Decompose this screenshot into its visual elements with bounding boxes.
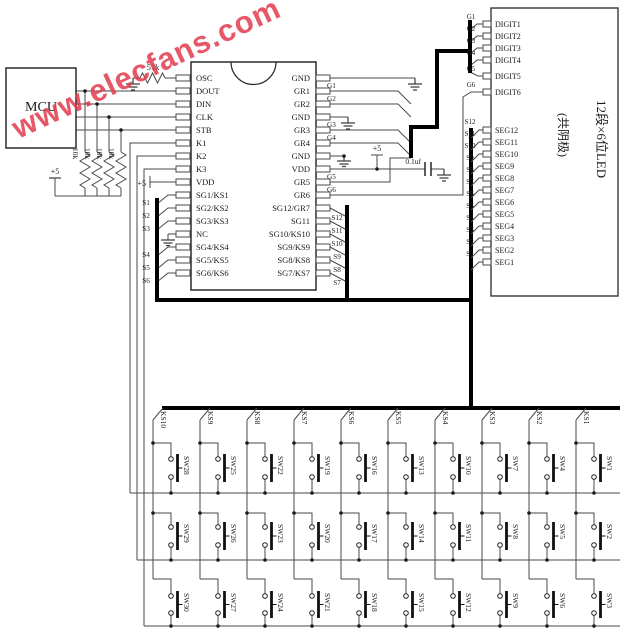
ks-column-label: KS10 <box>159 411 168 428</box>
junction-dot <box>216 624 220 628</box>
junction-dot <box>169 624 173 628</box>
ks-column-label: KS5 <box>394 411 403 425</box>
net-label: G2 <box>327 95 336 103</box>
net-label: S4 <box>466 214 474 222</box>
switch-terminal <box>310 475 315 480</box>
junction-dot <box>592 558 596 562</box>
chip-pin-right <box>316 231 330 237</box>
switch-terminal <box>310 525 315 530</box>
matrix-column <box>247 408 277 626</box>
switch-terminal <box>404 543 409 548</box>
switch-wire <box>294 443 312 493</box>
switch-terminal <box>451 594 456 599</box>
chip-pin-left <box>176 166 190 172</box>
display-subtitle: (共阴极) <box>556 113 570 157</box>
display-digit-pin <box>483 21 491 27</box>
display-pin-label: SEG11 <box>495 138 518 147</box>
switch-terminal <box>451 475 456 480</box>
junction-dot <box>216 558 220 562</box>
switch-wire <box>435 443 453 493</box>
net-label: G3 <box>467 37 476 45</box>
junction-dot <box>480 511 484 515</box>
digit-bus <box>409 20 470 158</box>
switch-label: SW5 <box>558 524 567 539</box>
switch-terminal <box>357 611 362 616</box>
net-label: S1 <box>466 250 474 258</box>
junction-dot <box>545 491 549 495</box>
switch-wire <box>294 579 312 626</box>
chip-pin-label: NC <box>196 229 208 239</box>
vcc-label: +5 <box>373 144 382 153</box>
switch-label: SW1 <box>605 456 614 471</box>
switch-terminal <box>216 525 221 530</box>
switch-terminal <box>357 594 362 599</box>
display-pin-label: DIGIT3 <box>495 44 521 53</box>
chip-pin-label: GND <box>292 73 310 83</box>
ks-column-label: KS3 <box>488 411 497 425</box>
junction-dot <box>342 154 346 158</box>
display-pin-label: DIGIT4 <box>495 56 521 65</box>
switch-terminal <box>592 457 597 462</box>
switch-terminal <box>169 594 174 599</box>
ground-icon <box>126 78 140 90</box>
chip-pin-right <box>316 114 330 120</box>
switch-terminal <box>357 475 362 480</box>
chip-pin-label: SG7/KS7 <box>277 268 310 278</box>
chip-pin-left <box>176 140 190 146</box>
switch-label: SW6 <box>558 593 567 608</box>
chip-pin-left <box>176 75 190 81</box>
net-label: S11 <box>332 227 343 235</box>
switch-terminal <box>498 543 503 548</box>
display-seg-pin <box>483 187 491 193</box>
switch-wire <box>435 579 453 626</box>
switch-wire <box>576 443 594 493</box>
switch-terminal <box>498 475 503 480</box>
net-label: G1 <box>467 13 476 21</box>
net-label: S10 <box>465 142 476 150</box>
vcc-label: +5 <box>137 179 146 188</box>
net-label: S5 <box>142 264 150 272</box>
display-pin-label: SEG8 <box>495 174 514 183</box>
net-label: S4 <box>142 251 150 259</box>
ks-column-label: KS8 <box>253 411 262 425</box>
junction-dot <box>592 624 596 628</box>
display-seg-pin <box>483 175 491 181</box>
switch-terminal <box>498 525 503 530</box>
display-seg-pin <box>483 259 491 265</box>
switch-terminal <box>592 475 597 480</box>
junction-dot <box>527 441 531 445</box>
switch-terminal <box>169 611 174 616</box>
switch-terminal <box>404 594 409 599</box>
switch-terminal <box>592 543 597 548</box>
switch-label: SW30 <box>182 593 191 612</box>
switch-wire <box>341 513 359 560</box>
ks-column-label: KS7 <box>300 411 309 425</box>
switch-terminal <box>263 525 268 530</box>
net-label: S7 <box>466 178 474 186</box>
display-pin-label: SEG5 <box>495 210 514 219</box>
display-pin-label: DIGIT5 <box>495 72 521 81</box>
nc-wire <box>168 234 176 240</box>
chip-pin-label: SG8/KS8 <box>277 255 310 265</box>
ks-column-label: KS2 <box>535 411 544 425</box>
junction-dot <box>574 441 578 445</box>
junction-dot <box>404 558 408 562</box>
chip-pin-left <box>176 218 190 224</box>
switch-label: SW17 <box>370 524 379 543</box>
net-label: S3 <box>466 226 474 234</box>
mcu-to-chip-wires <box>76 91 176 130</box>
chip-pin-label: OSC <box>196 73 213 83</box>
vdd-left-wire <box>150 176 176 188</box>
chip-pin-left <box>176 205 190 211</box>
display-seg-pin <box>483 127 491 133</box>
ks-column-label: KS9 <box>206 411 215 425</box>
switch-terminal <box>545 611 550 616</box>
switch-wire <box>388 513 406 560</box>
bypass-cap-value: 0.1uf <box>405 157 421 166</box>
switch-label: SW2 <box>605 524 614 539</box>
chip-pin-label: GR2 <box>294 99 310 109</box>
chip-pin-right <box>316 153 330 159</box>
switch-label: SW4 <box>558 456 567 471</box>
switch-wire <box>294 513 312 560</box>
switch-label: SW10 <box>464 456 473 475</box>
switch-terminal <box>357 525 362 530</box>
display-seg-pin <box>483 235 491 241</box>
chip-pin-right <box>316 244 330 250</box>
switch-label: SW19 <box>323 456 332 475</box>
chip-pin-label: GR1 <box>294 86 310 96</box>
junction-dot <box>404 624 408 628</box>
switch-terminal <box>545 457 550 462</box>
switch-terminal <box>592 594 597 599</box>
chip-pin-label: SG11 <box>291 216 310 226</box>
pullup-value: 10k <box>83 148 92 160</box>
chip-pin-left <box>176 88 190 94</box>
switch-terminal <box>310 543 315 548</box>
net-label: S11 <box>465 130 476 138</box>
junction-dot <box>498 624 502 628</box>
switch-wire <box>482 513 500 560</box>
junction-dot <box>339 511 343 515</box>
junction-dot <box>310 491 314 495</box>
switch-terminal <box>357 543 362 548</box>
chip-pin-right <box>316 75 330 81</box>
pullup-value: 10k <box>71 148 80 160</box>
junction-dot <box>292 441 296 445</box>
display-pin-label: SEG6 <box>495 198 514 207</box>
display-pin-label: SEG4 <box>495 222 514 231</box>
display-pin-label: SEG1 <box>495 258 514 267</box>
chip-pin-label: GR4 <box>294 138 311 148</box>
switch-wire <box>247 579 265 626</box>
junction-dot <box>451 624 455 628</box>
display-pin-label: SEG3 <box>495 234 514 243</box>
junction-dot <box>263 491 267 495</box>
chip-pin-label: STB <box>196 125 212 135</box>
switch-terminal <box>451 457 456 462</box>
switch-terminal <box>404 525 409 530</box>
switch-wire <box>388 443 406 493</box>
junction-dot <box>545 558 549 562</box>
switch-terminal <box>263 457 268 462</box>
left-net-stubs <box>157 195 176 282</box>
switch-terminal <box>216 475 221 480</box>
display-seg-pin <box>483 151 491 157</box>
net-label: S5 <box>466 202 474 210</box>
switch-label: SW25 <box>229 456 238 475</box>
switch-wire <box>529 579 547 626</box>
junction-dot <box>95 102 99 106</box>
chip-pin-label: SG2/KS2 <box>196 203 229 213</box>
ks-column-label: KS1 <box>582 411 591 425</box>
junction-dot <box>592 491 596 495</box>
switch-wire <box>247 443 265 493</box>
switch-terminal <box>404 457 409 462</box>
chip-pin-left <box>176 153 190 159</box>
capacitor-symbol <box>425 162 431 176</box>
net-label: S12 <box>331 214 343 222</box>
chip-pin-label: GR5 <box>294 177 310 187</box>
junction-dot <box>339 441 343 445</box>
net-label: S6 <box>466 190 474 198</box>
chip-pin-left <box>176 257 190 263</box>
net-label: G2 <box>467 25 476 33</box>
switch-wire <box>435 513 453 560</box>
switch-terminal <box>216 594 221 599</box>
display-pin-label: DIGIT1 <box>495 20 521 29</box>
junction-dot <box>263 558 267 562</box>
chip-pin-right <box>316 218 330 224</box>
pullup-value: 10k <box>107 148 116 160</box>
junction-dot <box>498 491 502 495</box>
switch-label: SW28 <box>182 456 191 475</box>
switch-label: SW3 <box>605 593 614 608</box>
net-label: S1 <box>142 199 150 207</box>
vdd-cap-wires <box>330 155 444 169</box>
switch-wire <box>153 443 171 493</box>
junction-dot <box>151 441 155 445</box>
ks-column-label: KS6 <box>347 411 356 425</box>
chip-pin-label: DOUT <box>196 86 220 96</box>
display-digit-pin <box>483 73 491 79</box>
switch-terminal <box>451 525 456 530</box>
switch-terminal <box>263 611 268 616</box>
switch-terminal <box>310 594 315 599</box>
switch-label: SW13 <box>417 456 426 475</box>
switch-terminal <box>216 611 221 616</box>
junction-dot <box>357 491 361 495</box>
junction-dot <box>245 441 249 445</box>
junction-dot <box>245 511 249 515</box>
junction-dot <box>375 167 379 171</box>
matrix-column <box>294 408 324 626</box>
switch-terminal <box>169 543 174 548</box>
switch-terminal <box>545 543 550 548</box>
matrix-column <box>482 408 512 626</box>
chip-pin-label: GR3 <box>294 125 310 135</box>
chip-pin-left <box>176 179 190 185</box>
chip-pin-label: K2 <box>196 151 206 161</box>
display-seg-pin <box>483 199 491 205</box>
chip-pin-right <box>316 166 330 172</box>
chip-pin-label: VDD <box>292 164 310 174</box>
chip-pin-right <box>316 257 330 263</box>
pullup-resistor-symbol <box>116 152 126 188</box>
matrix-column <box>576 408 606 626</box>
switch-terminal <box>263 594 268 599</box>
chip-pin-label: SG10/KS10 <box>269 229 310 239</box>
chip-pin-label: VDD <box>196 177 214 187</box>
chip-pin-left <box>176 270 190 276</box>
switch-label: SW14 <box>417 524 426 543</box>
switch-label: SW11 <box>464 524 473 543</box>
mcu-label: MCU <box>25 100 57 115</box>
switch-terminal <box>498 457 503 462</box>
junction-dot <box>83 89 87 93</box>
junction-dot <box>292 511 296 515</box>
junction-dot <box>216 491 220 495</box>
matrix-column <box>388 408 418 626</box>
display-digit-pin <box>483 89 491 95</box>
chip-pin-label: SG9/KS9 <box>277 242 310 252</box>
net-label: G3 <box>327 121 336 129</box>
switch-wire <box>529 443 547 493</box>
switch-wire <box>247 513 265 560</box>
chip-pin-label: GND <box>292 112 310 122</box>
ground-icon <box>161 240 175 246</box>
junction-dot <box>169 491 173 495</box>
net-label: G6 <box>327 186 336 194</box>
junction-dot <box>151 511 155 515</box>
junction-dot <box>527 511 531 515</box>
junction-dot <box>574 511 578 515</box>
switch-label: SW18 <box>370 593 379 612</box>
junction-dot <box>386 441 390 445</box>
chip-pin-label: CLK <box>196 112 214 122</box>
display-digit-pin <box>483 33 491 39</box>
net-label: S9 <box>466 154 474 162</box>
switch-terminal <box>498 594 503 599</box>
ground-icon <box>437 169 451 181</box>
chip-pin-left <box>176 231 190 237</box>
display-pin-label: SEG10 <box>495 150 518 159</box>
matrix-column <box>529 408 559 626</box>
switch-terminal <box>310 611 315 616</box>
chip-pin-label: SG3/KS3 <box>196 216 229 226</box>
chip-pin-label: GR6 <box>294 190 310 200</box>
switch-wire <box>341 579 359 626</box>
switch-terminal <box>404 611 409 616</box>
chip-pin-left <box>176 244 190 250</box>
junction-dot <box>545 624 549 628</box>
matrix-column <box>200 408 230 626</box>
switch-wire <box>388 579 406 626</box>
display-seg-pin <box>483 211 491 217</box>
switch-label: SW23 <box>276 524 285 543</box>
switch-label: SW24 <box>276 593 285 612</box>
switch-terminal <box>169 475 174 480</box>
switch-label: SW7 <box>511 456 520 471</box>
matrix-column <box>153 408 183 626</box>
osc-resistor-value: 51k <box>147 62 161 72</box>
net-label: S2 <box>466 238 474 246</box>
switch-terminal <box>498 611 503 616</box>
switch-label: SW16 <box>370 456 379 475</box>
junction-dot <box>119 128 123 132</box>
switch-wire <box>482 443 500 493</box>
net-label: G4 <box>327 134 336 142</box>
display-pin-label: DIGIT2 <box>495 32 521 41</box>
net-label: S8 <box>466 166 474 174</box>
net-label: G5 <box>327 173 336 181</box>
display-pin-label: SEG9 <box>495 162 514 171</box>
switch-terminal <box>451 543 456 548</box>
switch-label: SW15 <box>417 593 426 612</box>
junction-dot <box>357 558 361 562</box>
display-digit-pin <box>483 57 491 63</box>
schematic-drawing: MCU 51k 10k 10k 10k 10k +5 +5 +5 0.1uf 1… <box>0 0 624 632</box>
junction-dot <box>310 558 314 562</box>
switch-terminal <box>357 457 362 462</box>
switch-wire <box>200 579 218 626</box>
switch-terminal <box>592 611 597 616</box>
switch-terminal <box>310 457 315 462</box>
junction-dot <box>357 624 361 628</box>
chip-pin-label: SG6/KS6 <box>196 268 229 278</box>
net-label: S9 <box>333 253 341 261</box>
ground-icon <box>408 78 422 90</box>
switch-terminal <box>404 475 409 480</box>
display-pin-label: SEG7 <box>495 186 514 195</box>
switch-wire <box>576 513 594 560</box>
switch-label: SW9 <box>511 593 520 608</box>
switch-terminal <box>545 525 550 530</box>
switch-label: SW27 <box>229 593 238 612</box>
switch-wire <box>200 443 218 493</box>
switch-terminal <box>169 457 174 462</box>
display-pin-label: DIGIT6 <box>495 88 521 97</box>
junction-dot <box>451 491 455 495</box>
display-title: 12段×6位LED <box>594 100 609 178</box>
switch-terminal <box>451 611 456 616</box>
switch-wire <box>341 443 359 493</box>
net-label: G5 <box>467 65 476 73</box>
net-label: S6 <box>142 277 150 285</box>
net-label: S8 <box>333 266 341 274</box>
display-digit-pin <box>483 45 491 51</box>
matrix-column <box>341 408 371 626</box>
switch-wire <box>576 579 594 626</box>
switch-label: SW20 <box>323 524 332 543</box>
chip-pin-left <box>176 114 190 120</box>
junction-dot <box>498 558 502 562</box>
junction-dot <box>198 511 202 515</box>
switch-wire <box>153 579 171 626</box>
switch-label: SW8 <box>511 524 520 539</box>
switch-terminal <box>169 525 174 530</box>
junction-dot <box>433 441 437 445</box>
junction-dot <box>169 558 173 562</box>
osc-resistor-symbol <box>140 73 165 83</box>
switch-terminal <box>216 457 221 462</box>
display-seg-pin <box>483 223 491 229</box>
switch-terminal <box>545 594 550 599</box>
switch-wire <box>200 513 218 560</box>
